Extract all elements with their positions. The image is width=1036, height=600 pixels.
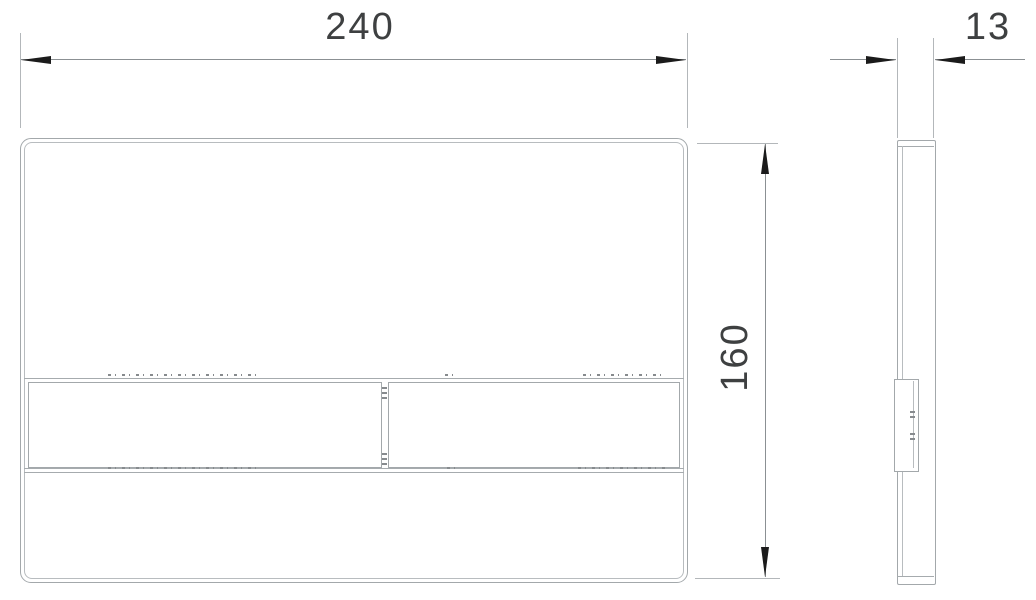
flush-button-large — [28, 382, 382, 468]
side-face-line — [902, 146, 903, 576]
arrow-right-icon — [656, 55, 686, 65]
ext-line-13-left — [897, 38, 898, 138]
divider-ticks — [382, 384, 387, 399]
dimension-depth-label: 13 — [950, 6, 1026, 49]
dim-line-240 — [21, 59, 686, 60]
side-button-ticks — [910, 408, 915, 418]
texture-dashes — [578, 467, 666, 469]
band-bottom-line-2 — [24, 472, 684, 473]
band-top-line — [24, 378, 684, 379]
ext-line-13-right — [933, 38, 934, 138]
ext-line-240-left — [20, 33, 21, 128]
arrow-up-icon — [760, 144, 770, 174]
arrow-right-icon — [866, 55, 896, 65]
texture-dashes — [447, 467, 459, 469]
side-button-inner-line — [913, 381, 914, 468]
texture-dashes — [108, 467, 258, 469]
technical-drawing-canvas: 240 13 160 — [0, 0, 1036, 600]
ext-line-160-bottom — [695, 578, 780, 579]
dimension-width-label: 240 — [295, 6, 425, 49]
divider-ticks — [382, 450, 387, 465]
plate-inner-edge — [24, 142, 684, 579]
side-button-ticks — [910, 432, 915, 440]
texture-dashes — [583, 374, 665, 376]
side-view-button-profile — [894, 379, 919, 472]
ext-line-240-right — [687, 33, 688, 128]
flush-plate-front-view — [20, 138, 688, 583]
dimension-height-label: 160 — [695, 317, 775, 397]
side-bottom-cap-line — [897, 576, 934, 577]
arrow-left-icon — [935, 55, 965, 65]
flush-button-small — [388, 382, 680, 468]
arrow-down-icon — [760, 547, 770, 577]
texture-dashes — [108, 374, 258, 376]
arrow-left-icon — [21, 55, 51, 65]
texture-dashes — [445, 374, 459, 376]
